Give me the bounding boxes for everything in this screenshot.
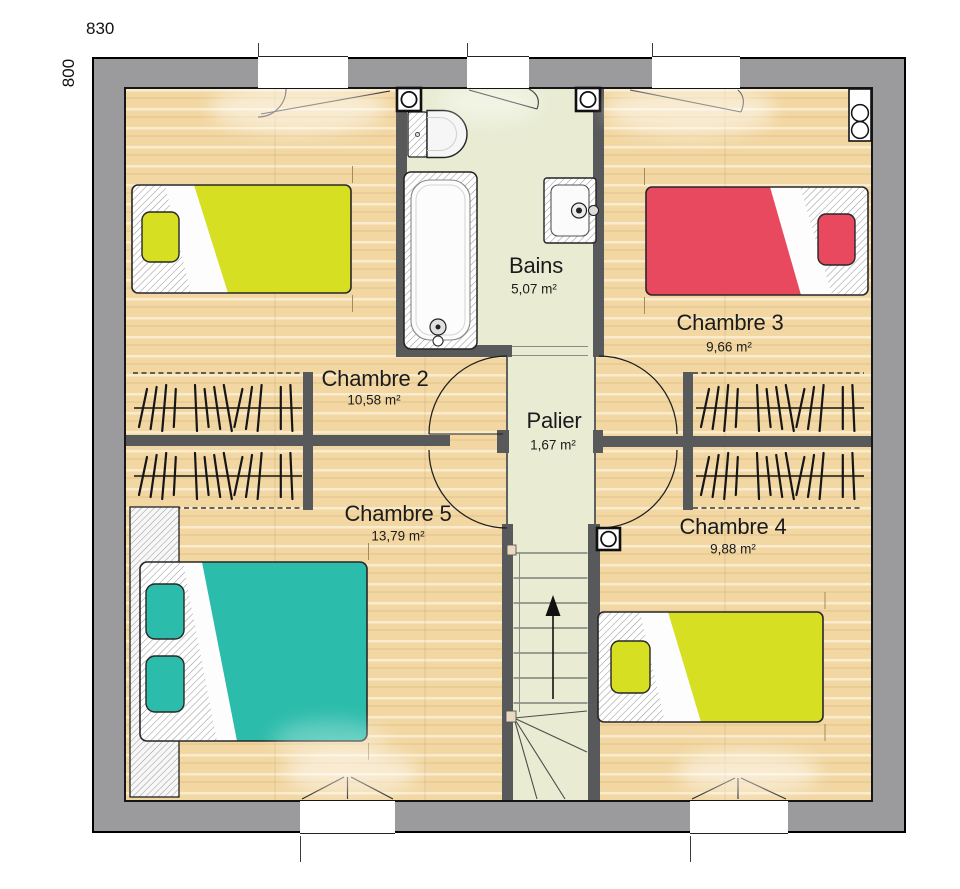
- bathtub: [404, 172, 477, 349]
- flue-icon: [849, 89, 871, 141]
- washbasin: [544, 178, 599, 243]
- stair-newel-post: [507, 545, 516, 555]
- door-arc-chambre4: [599, 450, 677, 528]
- room-label-chambre-2: Chambre 2: [321, 366, 428, 392]
- room-area-chambre-5: 13,79 m²: [371, 529, 424, 544]
- room-area-bains: 5,07 m²: [511, 282, 557, 297]
- closet-dashed-lines: [133, 373, 864, 508]
- room-label-bains: Bains: [509, 253, 563, 279]
- bed-chambre4: [598, 592, 825, 741]
- bathroom-door-opening: [512, 347, 588, 356]
- pillow: [611, 641, 650, 693]
- room-area-chambre-2: 10,58 m²: [347, 393, 400, 408]
- room-label-chambre-3: Chambre 3: [676, 310, 783, 336]
- door-arc-chambre3: [599, 356, 677, 434]
- vent-icon: [597, 528, 620, 550]
- room-label-chambre-4: Chambre 4: [679, 514, 786, 540]
- pillow: [146, 584, 184, 639]
- staircase: [506, 545, 588, 799]
- bed-chambre3: [645, 168, 869, 314]
- vent-icon: [576, 88, 600, 111]
- furniture-layer: [0, 0, 960, 889]
- floor-plan: 830 800: [0, 0, 960, 889]
- stair-up-arrow-head: [546, 595, 561, 616]
- room-area-palier: 1,67 m²: [530, 438, 576, 453]
- toilet-tank: [408, 112, 427, 157]
- room-label-palier: Palier: [526, 408, 581, 434]
- toilet: [408, 111, 467, 158]
- closet-hanger-rails: [134, 385, 864, 499]
- pillow: [146, 656, 184, 712]
- stair-newel-post: [506, 711, 516, 722]
- room-label-chambre-5: Chambre 5: [344, 501, 451, 527]
- pillow: [142, 212, 179, 262]
- bed-chambre2: [132, 166, 353, 312]
- room-area-chambre-4: 9,88 m²: [710, 542, 756, 557]
- room-area-chambre-3: 9,66 m²: [706, 340, 752, 355]
- vent-icon: [397, 88, 421, 111]
- pillow: [818, 214, 855, 265]
- door-arc-chambre2: [429, 356, 507, 434]
